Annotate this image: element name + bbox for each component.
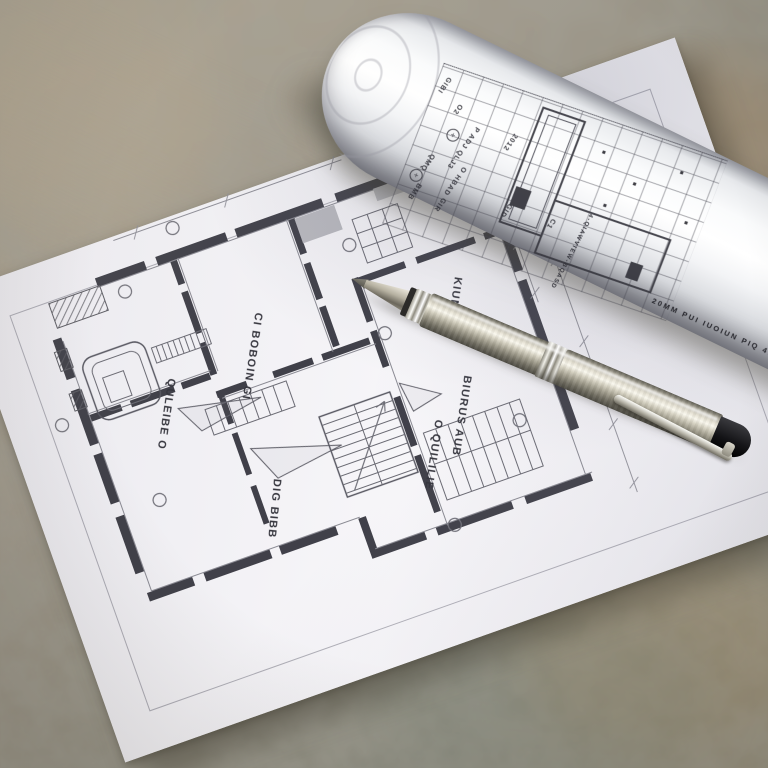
photo-stage: CI BOBOIN GI QULEIBE O DIG BIBB O QUILIL… (0, 0, 768, 768)
room-label-5: BIURUS AUB (449, 375, 473, 458)
roll-table-label: GIR (432, 196, 447, 213)
room-label-3: DIG BIBB (265, 478, 283, 539)
roll-table-label: 2012 (501, 132, 518, 152)
room-label-4: O QUILILIE (422, 419, 444, 491)
roll-table-label: O2 (451, 103, 463, 116)
plan-hatched-blocks (38, 286, 136, 411)
roll-table-label: QMQ (418, 152, 435, 172)
roll-table-label: O HBAD (442, 165, 468, 196)
roll-table-label: BMB (406, 182, 423, 201)
roll-symbol-circle: + (445, 127, 462, 143)
roll-table-label: GIBI (436, 76, 453, 95)
room-label-1: CI BOBOIN GI (239, 312, 264, 401)
